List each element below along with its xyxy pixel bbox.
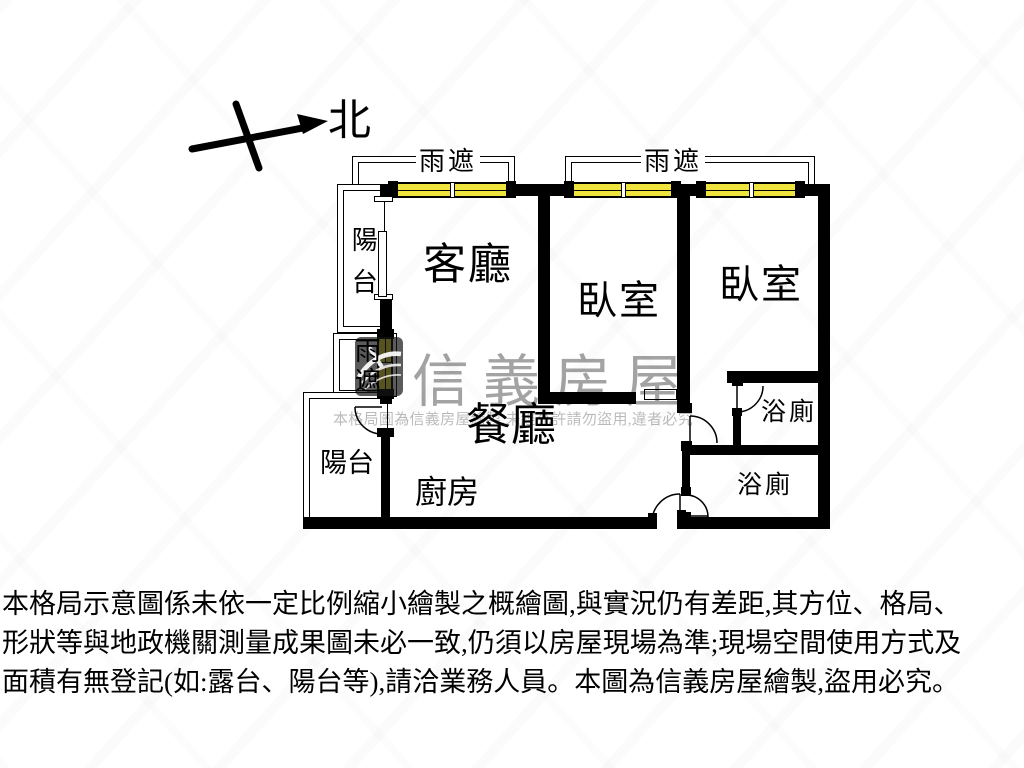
wall-bottom-right — [681, 517, 830, 529]
window-bedroom1 — [572, 182, 673, 198]
wall-bottom-left — [303, 517, 653, 529]
wall-balcony-kitchen — [381, 434, 390, 517]
label-living-room: 客廳 — [423, 243, 513, 288]
label-balcony-lower: 陽台 — [320, 449, 374, 477]
door-jamb — [677, 510, 686, 529]
door-jamb — [681, 441, 692, 451]
sliding-door-living-balcony — [378, 231, 387, 297]
disclaimer-text: 本格局示意圖係未依一定比例縮小繪製之概繪圖,與實況仍有差距,其方位、格局、 形狀… — [2, 585, 1024, 702]
door-jamb — [377, 428, 394, 437]
label-bedroom-right: 臥室 — [719, 264, 803, 306]
label-bathroom-upper: 浴廁 — [761, 400, 817, 426]
window-bedroom2 — [704, 182, 797, 198]
label-dining-room: 餐廳 — [466, 402, 556, 449]
window-living — [396, 182, 508, 198]
label-canopy-top-left: 雨遮 — [416, 148, 480, 175]
label-canopy-top-right: 雨遮 — [641, 148, 705, 175]
wall-right — [818, 184, 830, 529]
north-label: 北 — [328, 99, 371, 144]
label-bedroom-left: 臥室 — [577, 280, 661, 322]
floor-plan-page: 信義房屋 本格局圖為信義房屋繪製,未經允許請勿盜用,違者必究 北 雨遮 雨遮 陽… — [0, 0, 1024, 768]
label-bathroom-lower: 浴廁 — [737, 473, 793, 499]
door-jamb — [681, 487, 691, 496]
door-jamb — [732, 378, 743, 386]
disclaimer-line-3: 面積有無登記(如:露台、陽台等),請洽業務人員。本圖為信義房屋繪製,盜用必究。 — [2, 663, 1024, 702]
disclaimer-line-2: 形狀等與地政機關測量成果圖未必一致,仍須以房屋現場為準;現場空間使用方式及 — [2, 624, 1024, 663]
wall-vestibule-bath — [733, 412, 741, 453]
label-canopy-side: 雨遮 — [352, 337, 379, 397]
label-balcony-upper: 陽台 — [349, 226, 376, 310]
disclaimer-line-1: 本格局示意圖係未依一定比例縮小繪製之概繪圖,與實況仍有差距,其方位、格局、 — [2, 585, 1024, 624]
door-jamb — [732, 408, 742, 416]
wall-bath-divider — [690, 445, 830, 455]
jamb-tick — [374, 196, 393, 202]
label-kitchen: 廚房 — [415, 476, 479, 510]
door-jamb — [648, 513, 657, 529]
